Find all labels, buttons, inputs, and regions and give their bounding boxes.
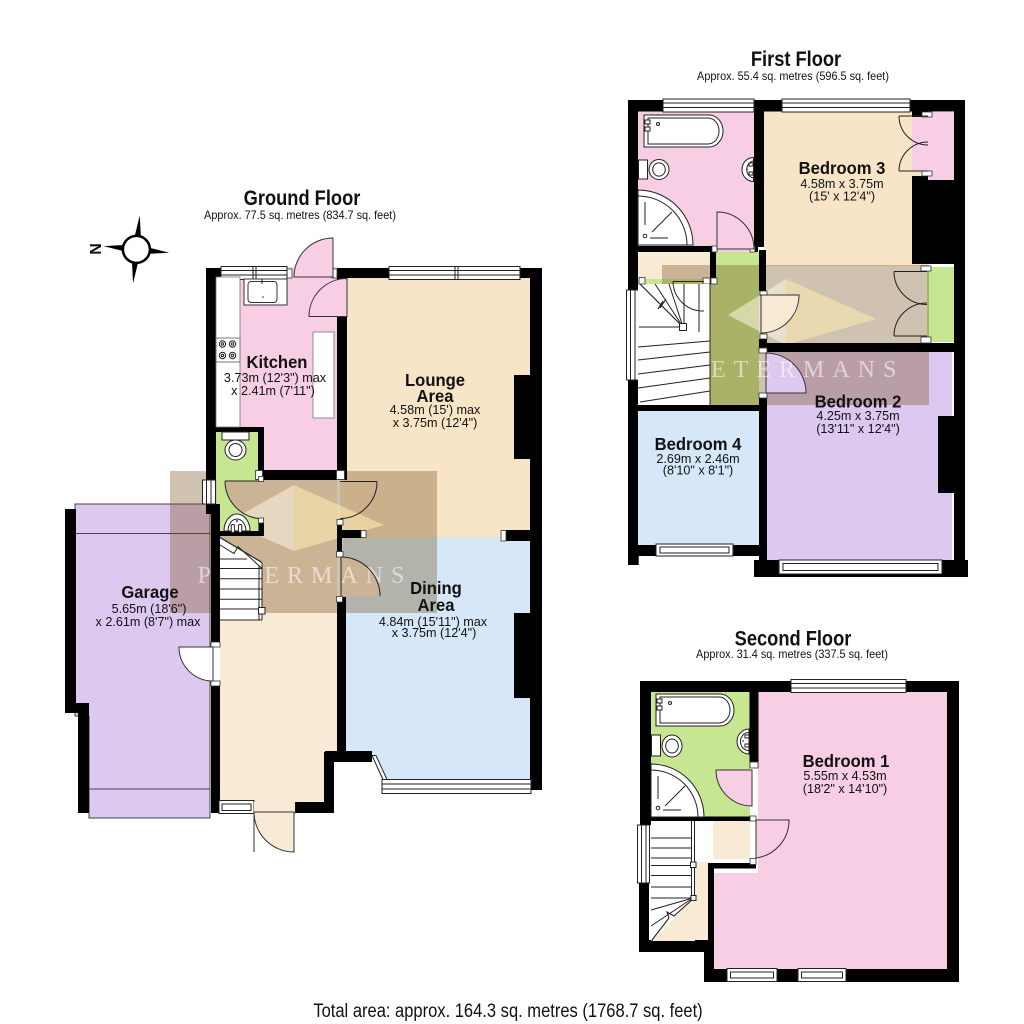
svg-text:Total area: approx. 164.3 sq.: Total area: approx. 164.3 sq. metres (17… (313, 1000, 702, 1021)
svg-text:x 2.61m (8'7") max: x 2.61m (8'7") max (96, 614, 202, 629)
svg-text:PETERMANS: PETERMANS (690, 357, 905, 383)
svg-text:Approx. 77.5 sq. metres (834.7: Approx. 77.5 sq. metres (834.7 sq. feet) (204, 208, 396, 222)
svg-text:Approx. 55.4 sq. metres (596.5: Approx. 55.4 sq. metres (596.5 sq. feet) (697, 69, 889, 83)
svg-text:Approx. 31.4 sq. metres (337.5: Approx. 31.4 sq. metres (337.5 sq. feet) (696, 647, 888, 661)
svg-text:x 3.75m (12'4"): x 3.75m (12'4") (393, 415, 478, 430)
svg-text:x 2.41m (7'11"): x 2.41m (7'11") (231, 383, 315, 398)
svg-text:(18'2" x 14'10"): (18'2" x 14'10") (803, 781, 888, 796)
svg-text:(15' x 12'4"): (15' x 12'4") (809, 188, 875, 203)
svg-text:Garage: Garage (121, 583, 178, 602)
svg-text:(8'10" x 8'1"): (8'10" x 8'1") (663, 462, 733, 477)
svg-text:Area: Area (418, 596, 455, 615)
svg-text:(13'11" x 12'4"): (13'11" x 12'4") (816, 421, 900, 436)
svg-text:N: N (88, 243, 105, 255)
svg-text:First Floor: First Floor (751, 48, 842, 72)
svg-text:x 3.75m (12'4"): x 3.75m (12'4") (392, 625, 477, 640)
svg-text:Ground Floor: Ground Floor (244, 187, 361, 211)
